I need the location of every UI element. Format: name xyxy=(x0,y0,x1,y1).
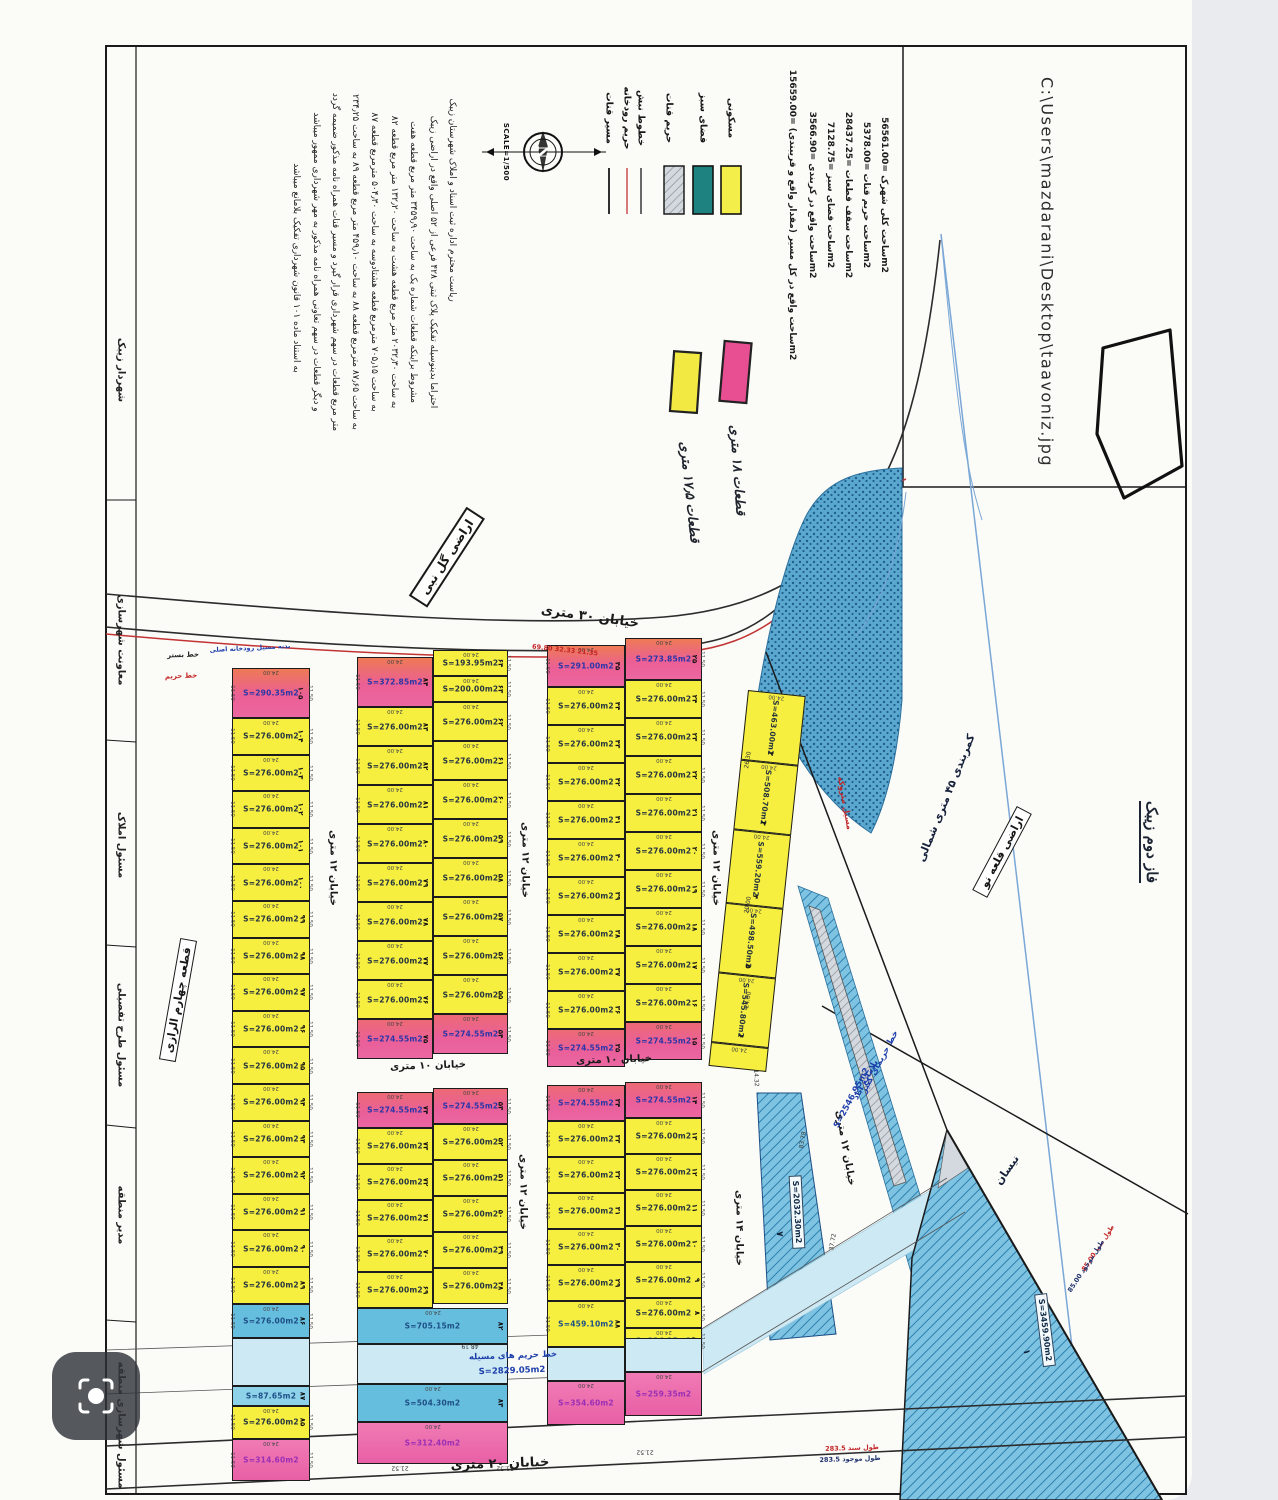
dim: 11.50 xyxy=(699,691,705,707)
plot-number: ۶۳ xyxy=(497,685,505,694)
dim: 24.00 xyxy=(578,1266,594,1272)
dim: 11.50 xyxy=(354,1102,360,1118)
plot-area-label: S=274.55m2 xyxy=(443,1102,499,1111)
plot-number: ۷۸ xyxy=(422,917,430,926)
dim: 24.00 xyxy=(656,1155,672,1161)
dim: 24.00 xyxy=(656,871,672,877)
plot-area-label: S=276.00m2 xyxy=(243,1134,299,1143)
plot-area-label: S=276.00m2 xyxy=(636,923,692,932)
plot-number: ۵۹ xyxy=(497,834,505,843)
dim: 11.50 xyxy=(307,838,313,854)
dim: 11.50 xyxy=(354,1031,360,1047)
plot-number: ۱۰۰ xyxy=(297,876,305,889)
dim: 24.00 xyxy=(263,1048,279,1054)
plot: S=276.00m2۴۴24.0011.50 xyxy=(547,687,625,725)
dim: 24.00 xyxy=(656,833,672,839)
plot-number: ۵۵ xyxy=(497,990,505,999)
dim: 11.50 xyxy=(229,1021,235,1037)
plot-number: ۵۱ xyxy=(497,1174,505,1183)
plot: S=276.00m2۲۴24.0011.50 xyxy=(625,680,702,718)
plot-number: ۲۴ xyxy=(691,695,699,704)
plot-area-label: S=274.55m2 xyxy=(367,1035,423,1044)
plot-number: ۵۴ xyxy=(497,1030,505,1039)
plot-number: ۱۰۲ xyxy=(297,803,305,816)
dim: 11.50 xyxy=(699,805,705,821)
plot-number: ۳۱ xyxy=(614,1207,622,1216)
dim: 24.00 xyxy=(578,954,594,960)
dim: 11.50 xyxy=(229,875,235,891)
plot: S=274.55m2۳۴24.0011.50 xyxy=(547,1085,625,1121)
plot-area-label: S=276.00m2 xyxy=(558,892,614,901)
plot-number: ۱۲ xyxy=(691,1168,699,1177)
dim: 11.50 xyxy=(505,1242,511,1258)
dim: 11.50 xyxy=(544,1040,550,1056)
dim: 11.50 xyxy=(699,1164,705,1180)
screenshot-stage: N S=290.35m2۱۰۵24.0011.5011.50S=276. xyxy=(0,0,1278,1500)
dim: 11.50 xyxy=(699,651,705,667)
plot: S=276.00m2۳۱24.0011.50 xyxy=(547,1193,625,1229)
dim: 24.00 xyxy=(463,781,479,787)
plot-number: ۷۳ xyxy=(422,1142,430,1151)
dim: 24.00 xyxy=(578,1122,594,1128)
plot-number: ۱۷ xyxy=(691,961,699,970)
plot: S=276.00m2۵۷24.0011.50 xyxy=(433,897,508,936)
dim: 11.50 xyxy=(229,948,235,964)
plot-area-label: S=504.30m2 xyxy=(405,1399,461,1408)
dim: 11.50 xyxy=(699,919,705,935)
plot-number: ۴۲ xyxy=(614,778,622,787)
plot-number: ۳۹ xyxy=(614,892,622,901)
dim: 24.00 xyxy=(263,902,279,908)
dim: 11.50 xyxy=(505,948,511,964)
plot-area-label: S=276.00m2 xyxy=(636,961,692,970)
dim: 11.50 xyxy=(505,753,511,769)
dim: 11.50 xyxy=(229,1204,235,1220)
dim: 24.00 xyxy=(656,947,672,953)
plot-area-label: S=276.00m2 xyxy=(243,1208,299,1217)
plot-number: ۷۰ xyxy=(422,1250,430,1259)
dim: 11.50 xyxy=(505,1098,511,1114)
dim: 24.00 xyxy=(463,1269,479,1275)
plot-number: ۸۸ xyxy=(614,1320,622,1329)
dim: 24.00 xyxy=(463,1089,479,1095)
dim: 11.50 xyxy=(544,658,550,674)
dim: 11.50 xyxy=(699,843,705,859)
plot-number: ۷۲ xyxy=(422,1178,430,1187)
plot-number: ۷۵ xyxy=(422,1035,430,1044)
dim: 11.50 xyxy=(699,1128,705,1144)
dim: 11.50 xyxy=(307,1241,313,1257)
dim: 11.50 xyxy=(505,1170,511,1186)
dim: 11.50 xyxy=(354,1282,360,1298)
plot: S=276.00m2۱۰۱24.0011.5011.50 xyxy=(232,828,310,865)
plot-number: ۱۹ xyxy=(691,885,699,894)
dim: 24.00 xyxy=(263,1122,279,1128)
plot-number: ۳۰ xyxy=(614,1243,622,1252)
plot: S=312.40m224.00 xyxy=(357,1422,508,1464)
dim: 24.00 xyxy=(463,1161,479,1167)
plot-area-label: S=274.55m2 xyxy=(636,1037,692,1046)
plot: S=276.00m2۹۲24.0011.5011.50 xyxy=(232,1157,310,1194)
dim: 24.00 xyxy=(656,1191,672,1197)
dim: 24.00 xyxy=(463,677,479,683)
plot-number: ۵۰ xyxy=(497,1210,505,1219)
plot-number: ۴۴ xyxy=(614,702,622,711)
dim: 11.50 xyxy=(699,767,705,783)
dim: 24.00 xyxy=(578,840,594,846)
plot-area-label: S=276.00m2 xyxy=(243,732,299,741)
plot-number: ۹۱ xyxy=(299,1208,307,1217)
plot: S=276.00m2۹۰24.0011.5011.50 xyxy=(232,1230,310,1267)
plot: S=276.00m2۳۶24.0011.50 xyxy=(547,991,625,1029)
dim: 11.50 xyxy=(307,728,313,744)
plot: S=276.00m2۹۱24.0011.5011.50 xyxy=(232,1194,310,1231)
dim: 11.50 xyxy=(307,911,313,927)
plot-number: ۸۹ xyxy=(299,1281,307,1290)
plot-number: ۴۵ xyxy=(614,662,622,671)
plot-area-label: S=276.00m2 xyxy=(367,722,423,731)
plot-number: ۴۹ xyxy=(497,1246,505,1255)
plot-number: ۳۷ xyxy=(614,968,622,977)
dim: 11.50 xyxy=(307,1452,313,1468)
plot: S=274.55m2۷۴24.0011.50 xyxy=(357,1092,433,1128)
plot-area-label: S=276.00m2 xyxy=(243,805,299,814)
plot-area-label: S=276.00m2 xyxy=(636,1276,692,1285)
dim: 11.50 xyxy=(544,1275,550,1291)
dim: 24.00 xyxy=(578,1086,594,1092)
dim: 24.00 xyxy=(387,786,403,792)
plot-area-label: S=372.85m2 xyxy=(367,678,423,687)
dim: 24.00 xyxy=(263,1231,279,1237)
plot-column: S=463.00m2۲24.00S=508.70m2۳24.00S=559.20… xyxy=(748,690,806,696)
plot-number: ۴۳ xyxy=(614,740,622,749)
plot-number: ۱۵ xyxy=(691,1037,699,1046)
plot: S=276.00m2۱۶24.0011.50 xyxy=(625,984,702,1022)
dim: 24.00 xyxy=(263,1407,279,1413)
plot-number: ۵۸ xyxy=(497,873,505,882)
dim: 24.00 xyxy=(656,1299,672,1305)
plot: S=276.00m2۲۲24.0011.50 xyxy=(625,756,702,794)
dim: 11.50 xyxy=(544,1239,550,1255)
dim: 24.00 xyxy=(656,1119,672,1125)
dim: 11.50 xyxy=(354,758,360,774)
plot-number: ۵۷ xyxy=(497,912,505,921)
dim: 11.50 xyxy=(699,1092,705,1108)
dim: 24.00 xyxy=(387,1165,403,1171)
plot-number: ۱۸ xyxy=(691,923,699,932)
plot-area-label: S=276.00m2 xyxy=(243,878,299,887)
plot-number: ۹۵ xyxy=(299,1061,307,1070)
dim: 24.00 xyxy=(263,1158,279,1164)
plot: S=276.00m2۹۹24.0011.5011.50 xyxy=(232,901,310,938)
dim: 11.50 xyxy=(229,838,235,854)
plot-number: ۸۳ xyxy=(422,722,430,731)
dim: 11.50 xyxy=(699,957,705,973)
dim: 24.00 xyxy=(387,864,403,870)
plot: S=545.80m2۶24.00 xyxy=(711,972,776,1048)
plot-number: ۶۹ xyxy=(422,1286,430,1295)
plot: S=276.00m2۱۹24.0011.50 xyxy=(625,870,702,908)
plot-area-label: S=276.00m2 xyxy=(636,809,692,818)
plot: S=276.00m2۴۲24.0011.50 xyxy=(547,763,625,801)
dim: 24.00 xyxy=(263,865,279,871)
dim: 11.50 xyxy=(699,1236,705,1252)
dim: 24.00 xyxy=(387,903,403,909)
plot-number: ۱۰۱ xyxy=(297,840,305,853)
plot-area-label: S=276.00m2 xyxy=(367,878,423,887)
dim: 11.50 xyxy=(307,1094,313,1110)
dim: 11.50 xyxy=(505,831,511,847)
plot: S=276.00m2۱۸24.0011.50 xyxy=(625,908,702,946)
dim: 11.50 xyxy=(699,995,705,1011)
plot-number: ۷۴ xyxy=(422,1106,430,1115)
plot-number: ۴ xyxy=(751,894,759,899)
plot-number: ۶۲ xyxy=(497,717,505,726)
plot: S=276.00m2۵۹24.0011.50 xyxy=(433,819,508,858)
dim: 24.00 xyxy=(387,981,403,987)
plot-number: ۷۷ xyxy=(422,956,430,965)
plot-area-label: S=459.10m2 xyxy=(558,1320,614,1329)
plot-number: ۸۷ xyxy=(299,1391,307,1400)
dim: 11.50 xyxy=(307,948,313,964)
dim: 11.50 xyxy=(229,1277,235,1293)
plot-area-label: S=274.55m2 xyxy=(558,1099,614,1108)
plot: S=276.00m2۹۷24.0011.5011.50 xyxy=(232,974,310,1011)
dim: 11.50 xyxy=(354,797,360,813)
plot: S=276.00m2۳۹24.0011.50 xyxy=(547,877,625,915)
plot-number: ۲۵ xyxy=(691,655,699,664)
plot-number: ۱۳ xyxy=(691,1132,699,1141)
plot: S=276.00m2۲۳24.0011.50 xyxy=(625,718,702,756)
plot-number: ۹۴ xyxy=(299,1098,307,1107)
dim: 24.00 xyxy=(387,708,403,714)
dim: 11.50 xyxy=(354,953,360,969)
plot: S=276.00m2۵۰24.0011.50 xyxy=(433,1196,508,1232)
dim: 11.50 xyxy=(354,1174,360,1190)
plot-area-label: S=312.40m2 xyxy=(405,1439,461,1448)
dim: 11.50 xyxy=(307,1277,313,1293)
plot-area-label: S=508.70m2 xyxy=(758,769,773,825)
plot: S=276.00m2۴۸24.0011.50 xyxy=(433,1268,508,1304)
plot-number: ۵۲ xyxy=(497,1138,505,1147)
plot-number: ۴۰ xyxy=(614,854,622,863)
plot-area-label: S=276.00m2 xyxy=(443,912,499,921)
plot-area-label: S=276.00m2 xyxy=(243,1061,299,1070)
plot-number: ۴۸ xyxy=(497,1282,505,1291)
plot: S=276.00m2۴۹24.0011.50 xyxy=(433,1232,508,1268)
dim: 11.50 xyxy=(307,1414,313,1430)
dim: 24.00 xyxy=(578,916,594,922)
dim: 11.50 xyxy=(307,875,313,891)
plot: S=276.00m2۷۳24.0011.50 xyxy=(357,1128,433,1164)
plot: S=276.00m2۸۰24.0011.50 xyxy=(357,824,433,863)
plot-area-label: S=276.00m2 xyxy=(367,995,423,1004)
dim: 24.00 xyxy=(263,829,279,835)
plot-number: ۶ xyxy=(737,1034,745,1039)
plot-area-label: S=274.55m2 xyxy=(636,1096,692,1105)
dim: 24.00 xyxy=(656,719,672,725)
dim: 24.00 xyxy=(387,1129,403,1135)
dim: 24.00 xyxy=(463,651,479,657)
plot-area-label: S=276.00m2 xyxy=(558,778,614,787)
dim: 11.50 xyxy=(544,1167,550,1183)
plot: S=276.00m2۷۸24.0011.50 xyxy=(357,902,433,941)
dim: 11.50 xyxy=(505,1206,511,1222)
plot-area-label: S=273.85m2 xyxy=(636,655,692,664)
plot-area-label: S=276.00m2 xyxy=(243,1316,299,1325)
dim: 24.00 xyxy=(578,992,594,998)
plot-area-label: S=276.00m2 xyxy=(443,1246,499,1255)
plot-area-label: S=276.00m2 xyxy=(443,1282,499,1291)
plot-area-label: S=276.00m2 xyxy=(243,1418,299,1427)
plot xyxy=(547,1347,625,1381)
plot-area-label: S=276.00m2 xyxy=(443,1210,499,1219)
plot-area-label: S=276.00m2 xyxy=(558,702,614,711)
dim: 24.00 xyxy=(578,726,594,732)
dim: 24.00 xyxy=(387,1237,403,1243)
dim: 24.00 xyxy=(263,719,279,725)
plot-number: ۱۰۵ xyxy=(297,687,305,700)
dim: 24.00 xyxy=(656,1263,672,1269)
dim: 11.50 xyxy=(699,729,705,745)
dim: 24.00 xyxy=(263,1085,279,1091)
plot-area-label: S=276.00m2 xyxy=(558,968,614,977)
dim: 24.00 xyxy=(656,909,672,915)
dim: 11.50 xyxy=(229,685,235,701)
plot-area-label: S=87.65m2 xyxy=(246,1391,296,1400)
plot-area-label: S=276.00m2 xyxy=(558,740,614,749)
dim: 11.50 xyxy=(544,888,550,904)
plot: S=314.60m224.0011.5011.50 xyxy=(232,1439,310,1481)
plot: S=274.55m2۵۴24.0011.50 xyxy=(433,1014,508,1054)
plot-number: ۵ xyxy=(744,964,752,969)
dim: 24.00 xyxy=(656,1227,672,1233)
plot-number: ۷۹ xyxy=(422,878,430,887)
plot-number: ۶۴ xyxy=(497,659,505,668)
dim: 24.00 xyxy=(463,742,479,748)
plot-number: ۹۹ xyxy=(299,915,307,924)
plot-area-label: S=276.00m2 xyxy=(243,951,299,960)
dim: 24.00 xyxy=(387,825,403,831)
dim: 11.50 xyxy=(307,685,313,701)
plot-area-label: S=276.00m2 xyxy=(636,733,692,742)
plot-number: ۳۲ xyxy=(614,1171,622,1180)
dim: 11.50 xyxy=(229,1094,235,1110)
dim: 24.00 xyxy=(578,1302,594,1308)
plot-area-label: S=276.00m2 xyxy=(367,1142,423,1151)
dim: 11.50 xyxy=(229,1414,235,1430)
dim: 24.00 xyxy=(387,1020,403,1026)
dim: 11.50 xyxy=(544,698,550,714)
plot-area-label: S=276.00m2 xyxy=(367,839,423,848)
dim: 11.50 xyxy=(544,964,550,980)
plot-area-label: S=291.00m2 xyxy=(558,662,614,671)
plot: S=276.00m2۳۰24.0011.50 xyxy=(547,1229,625,1265)
plot: S=274.55m2۱۴24.0011.50 xyxy=(625,1082,702,1118)
plot: S=273.85m2۲۵24.0011.50 xyxy=(625,638,702,680)
dim: 11.50 xyxy=(229,911,235,927)
dim: 24.00 xyxy=(387,747,403,753)
plot: S=274.55m2۳۵24.0011.50 xyxy=(547,1029,625,1067)
plot: S=354.60m224.00 xyxy=(547,1381,625,1425)
plot-number: ۹۰ xyxy=(299,1244,307,1253)
plot-area-label: S=276.00m2 xyxy=(243,1281,299,1290)
plot-number: ۹۶ xyxy=(299,1025,307,1034)
dim: 24.00 xyxy=(463,859,479,865)
plot-area-label: S=276.00m2 xyxy=(243,1244,299,1253)
dim: 24.00 xyxy=(754,832,770,840)
plot: S=276.00m2۱۰۰24.0011.5011.50 xyxy=(232,864,310,901)
dim: 11.50 xyxy=(505,870,511,886)
plot-number: ۸۲ xyxy=(422,761,430,770)
dim: 11.50 xyxy=(307,1313,313,1329)
dim: 24.00 xyxy=(387,1093,403,1099)
plot: S=291.00m2۴۵24.0011.50 xyxy=(547,645,625,687)
plot: 24.00 xyxy=(708,1042,768,1072)
camera-lens-icon xyxy=(74,1374,118,1418)
dim: 11.50 xyxy=(229,765,235,781)
dim: 11.50 xyxy=(307,802,313,818)
dim: 11.50 xyxy=(307,1204,313,1220)
plot: S=276.00m2۶۱24.0011.50 xyxy=(433,741,508,780)
plot: S=705.15m2۸۲24.00 xyxy=(357,1308,508,1344)
plot: S=498.50m2۵24.00 xyxy=(718,903,783,979)
plot: S=276.00m2۶۲24.0011.50 xyxy=(433,702,508,741)
plot-area-label: S=314.60m2 xyxy=(243,1455,299,1464)
dim: 11.50 xyxy=(544,1203,550,1219)
dim: 11.50 xyxy=(544,736,550,752)
plot-number: ۷۱ xyxy=(422,1214,430,1223)
plot-number: ۸۱ xyxy=(422,800,430,809)
dim: 24.00 xyxy=(578,878,594,884)
plot: S=276.00m2۹۴24.0011.5011.50 xyxy=(232,1084,310,1121)
dim: 11.50 xyxy=(505,681,511,697)
dim: 11.50 xyxy=(544,812,550,828)
plot: S=290.35m2۱۰۵24.0011.5011.50 xyxy=(232,668,310,718)
camera-lens-button[interactable] xyxy=(52,1352,140,1440)
plot-number: ۸۰ xyxy=(422,839,430,848)
plot-number: ۲۲ xyxy=(691,771,699,780)
plot-number: ۴۱ xyxy=(614,816,622,825)
plot-number: ۸۳ xyxy=(497,1399,505,1408)
dim: 24.00 xyxy=(578,646,594,652)
dim: 11.50 xyxy=(699,881,705,897)
plot-number: ۸۴ xyxy=(422,678,430,687)
plot-area-label: S=290.35m2 xyxy=(243,689,299,698)
plot: S=276.00m2۶۹24.0011.50 xyxy=(357,1272,433,1308)
dim: 24.00 xyxy=(263,975,279,981)
dim: 24.00 xyxy=(463,703,479,709)
plot-area-label: S=276.00m2 xyxy=(243,988,299,997)
plot: S=459.10m2۸۸24.0011.50 xyxy=(547,1301,625,1347)
plot-number: ۲۰ xyxy=(691,847,699,856)
plot-number: ۳۵ xyxy=(614,1044,622,1053)
dim: 24.00 xyxy=(425,1309,441,1315)
plot-area-label: S=276.00m2 xyxy=(636,847,692,856)
plot-number: ۹۷ xyxy=(299,988,307,997)
dim: 24.00 xyxy=(463,898,479,904)
plot-area-label: S=276.00m2 xyxy=(367,956,423,965)
plot: S=276.00m2۵۲24.0011.50 xyxy=(433,1124,508,1160)
plot: S=276.00m2۸۲24.0011.50 xyxy=(357,746,433,785)
dim: 11.50 xyxy=(307,765,313,781)
dim: 11.50 xyxy=(544,1002,550,1018)
plot-area-label: S=276.00m2 xyxy=(443,834,499,843)
dim: 11.50 xyxy=(544,1095,550,1111)
plot-number: ۵۶ xyxy=(497,951,505,960)
plot-number: ۲۹ xyxy=(614,1279,622,1288)
dim: 11.50 xyxy=(505,1278,511,1294)
